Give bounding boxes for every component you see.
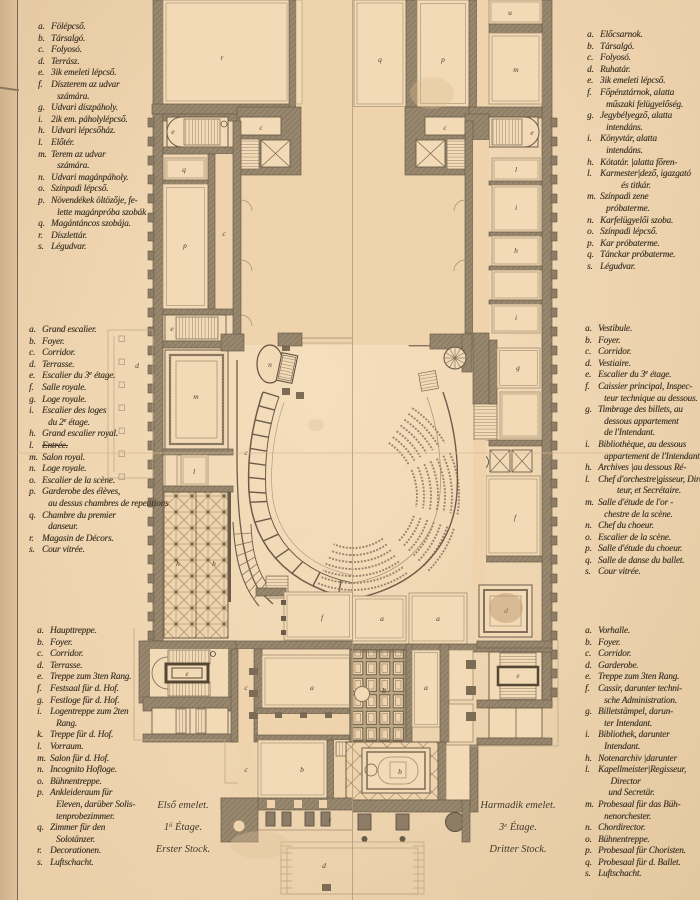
svg-text:i: i [515,203,517,212]
svg-text:a: a [436,614,440,623]
svg-text:h: h [176,559,180,568]
svg-text:d: d [322,861,326,870]
svg-text:h: h [514,246,518,255]
svg-text:b: b [300,765,304,774]
svg-text:b: b [382,686,386,695]
svg-text:b: b [398,767,402,776]
svg-text:e: e [516,672,519,680]
svg-text:q: q [182,165,186,174]
svg-text:r: r [221,53,224,62]
svg-text:p: p [440,55,445,64]
svg-text:q: q [378,55,382,64]
svg-text:i: i [515,313,517,322]
svg-text:a: a [310,683,314,692]
svg-text:m: m [193,392,199,401]
svg-text:g: g [516,363,520,372]
svg-text:a: a [380,614,384,623]
svg-text:n: n [268,360,272,369]
svg-text:a: a [424,683,428,692]
svg-text:l: l [515,165,517,174]
svg-text:l: l [193,467,195,476]
svg-text:e: e [185,670,188,678]
svg-text:m: m [513,65,519,74]
svg-text:p: p [182,241,187,250]
svg-text:u: u [508,8,512,17]
svg-text:h: h [212,559,216,568]
svg-text:c: c [328,816,332,824]
